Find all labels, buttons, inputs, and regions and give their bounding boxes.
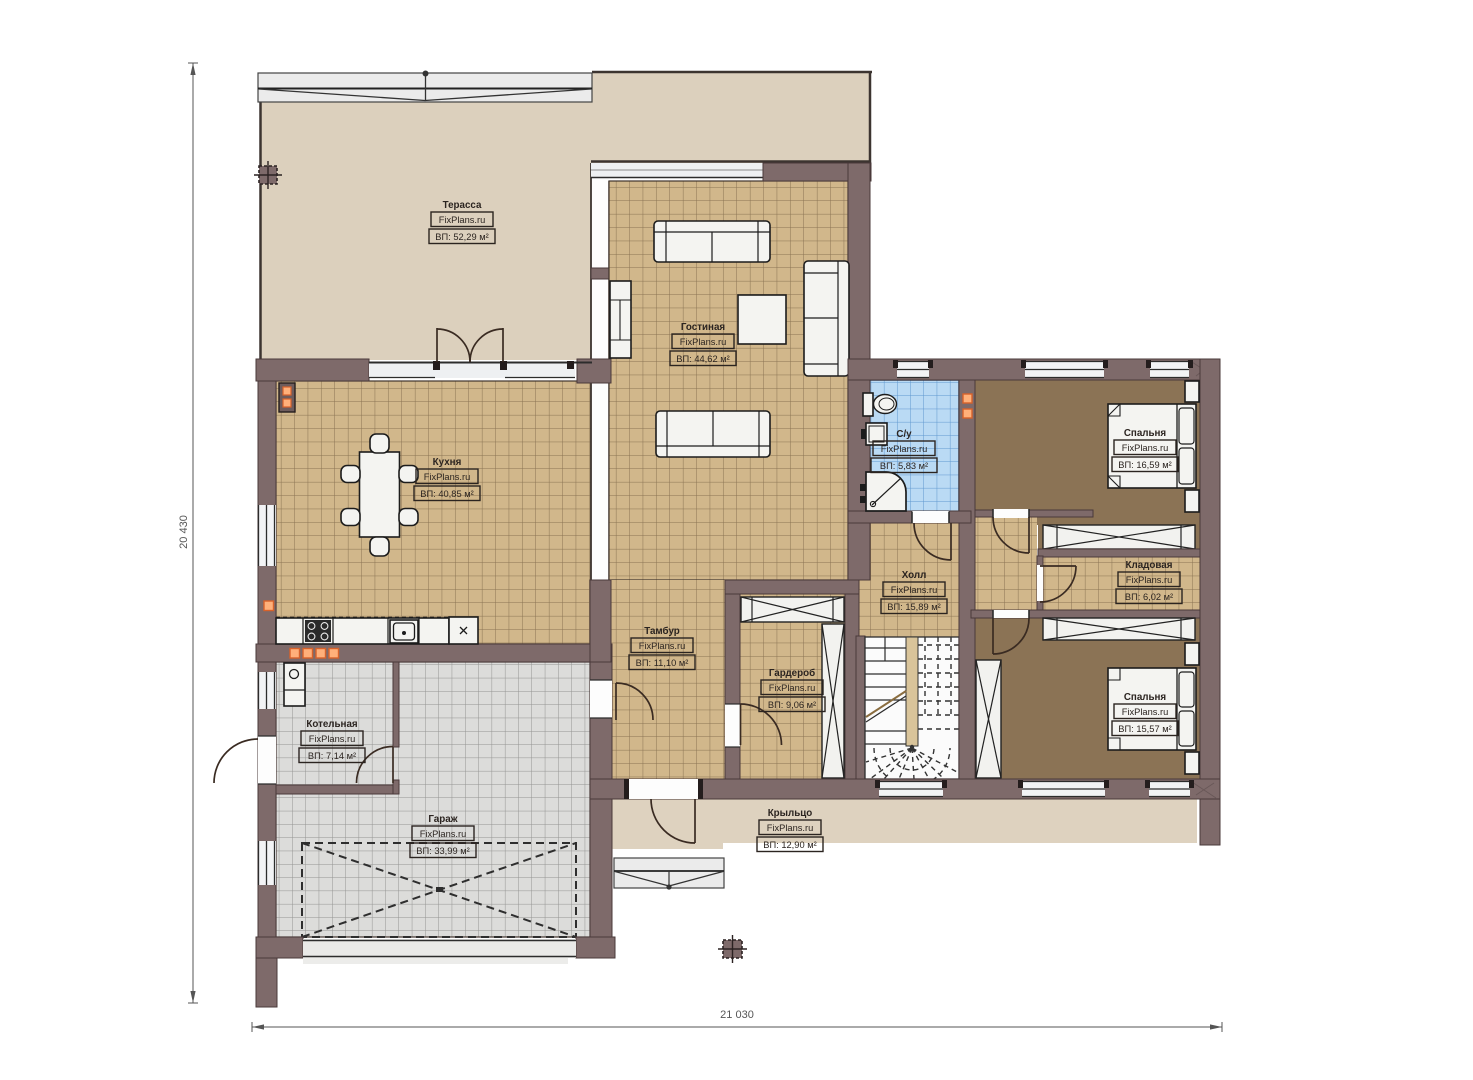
svg-text:ВП: 7,14 м²: ВП: 7,14 м²	[308, 751, 356, 761]
svg-text:FixPlans.ru: FixPlans.ru	[767, 823, 814, 833]
svg-text:ВП: 6,02 м²: ВП: 6,02 м²	[1125, 592, 1173, 602]
svg-text:FixPlans.ru: FixPlans.ru	[1122, 707, 1169, 717]
svg-text:Гостиная: Гостиная	[681, 322, 726, 333]
svg-text:FixPlans.ru: FixPlans.ru	[1122, 443, 1169, 453]
svg-text:FixPlans.ru: FixPlans.ru	[420, 829, 467, 839]
svg-text:ВП: 5,83 м²: ВП: 5,83 м²	[880, 461, 928, 471]
svg-text:FixPlans.ru: FixPlans.ru	[881, 444, 928, 454]
svg-text:ВП: 44,62 м²: ВП: 44,62 м²	[676, 354, 729, 364]
svg-text:FixPlans.ru: FixPlans.ru	[639, 641, 686, 651]
svg-text:Спальня: Спальня	[1124, 428, 1167, 439]
svg-text:ВП: 16,59 м²: ВП: 16,59 м²	[1118, 460, 1171, 470]
svg-text:FixPlans.ru: FixPlans.ru	[309, 734, 356, 744]
svg-text:ВП: 33,99 м²: ВП: 33,99 м²	[416, 846, 469, 856]
svg-text:ВП: 40,85 м²: ВП: 40,85 м²	[420, 489, 473, 499]
svg-text:FixPlans.ru: FixPlans.ru	[439, 215, 486, 225]
svg-text:Крыльцо: Крыльцо	[768, 808, 813, 819]
svg-text:Котельная: Котельная	[306, 719, 358, 730]
svg-text:20 430: 20 430	[178, 515, 190, 549]
svg-text:FixPlans.ru: FixPlans.ru	[891, 585, 938, 595]
svg-text:FixPlans.ru: FixPlans.ru	[769, 683, 816, 693]
svg-text:FixPlans.ru: FixPlans.ru	[1126, 575, 1173, 585]
svg-text:Гараж: Гараж	[428, 814, 458, 825]
svg-text:Спальня: Спальня	[1124, 692, 1167, 703]
svg-text:ВП: 9,06 м²: ВП: 9,06 м²	[768, 700, 816, 710]
svg-text:FixPlans.ru: FixPlans.ru	[680, 337, 727, 347]
svg-text:Тамбур: Тамбур	[644, 626, 680, 637]
svg-text:Кладовая: Кладовая	[1126, 560, 1173, 571]
svg-text:21 030: 21 030	[720, 1009, 754, 1021]
svg-text:Гардероб: Гардероб	[769, 668, 815, 679]
svg-text:ВП: 11,10 м²: ВП: 11,10 м²	[636, 658, 689, 668]
svg-text:Терасса: Терасса	[443, 200, 482, 211]
svg-text:С/у: С/у	[896, 429, 912, 440]
svg-text:Кухня: Кухня	[433, 457, 462, 468]
svg-text:Холл: Холл	[902, 570, 927, 581]
svg-text:ВП: 12,90 м²: ВП: 12,90 м²	[763, 840, 816, 850]
svg-text:ВП: 15,89 м²: ВП: 15,89 м²	[887, 602, 940, 612]
svg-text:FixPlans.ru: FixPlans.ru	[424, 472, 471, 482]
svg-text:ВП: 15,57 м²: ВП: 15,57 м²	[1118, 724, 1171, 734]
svg-text:ВП: 52,29 м²: ВП: 52,29 м²	[435, 232, 488, 242]
